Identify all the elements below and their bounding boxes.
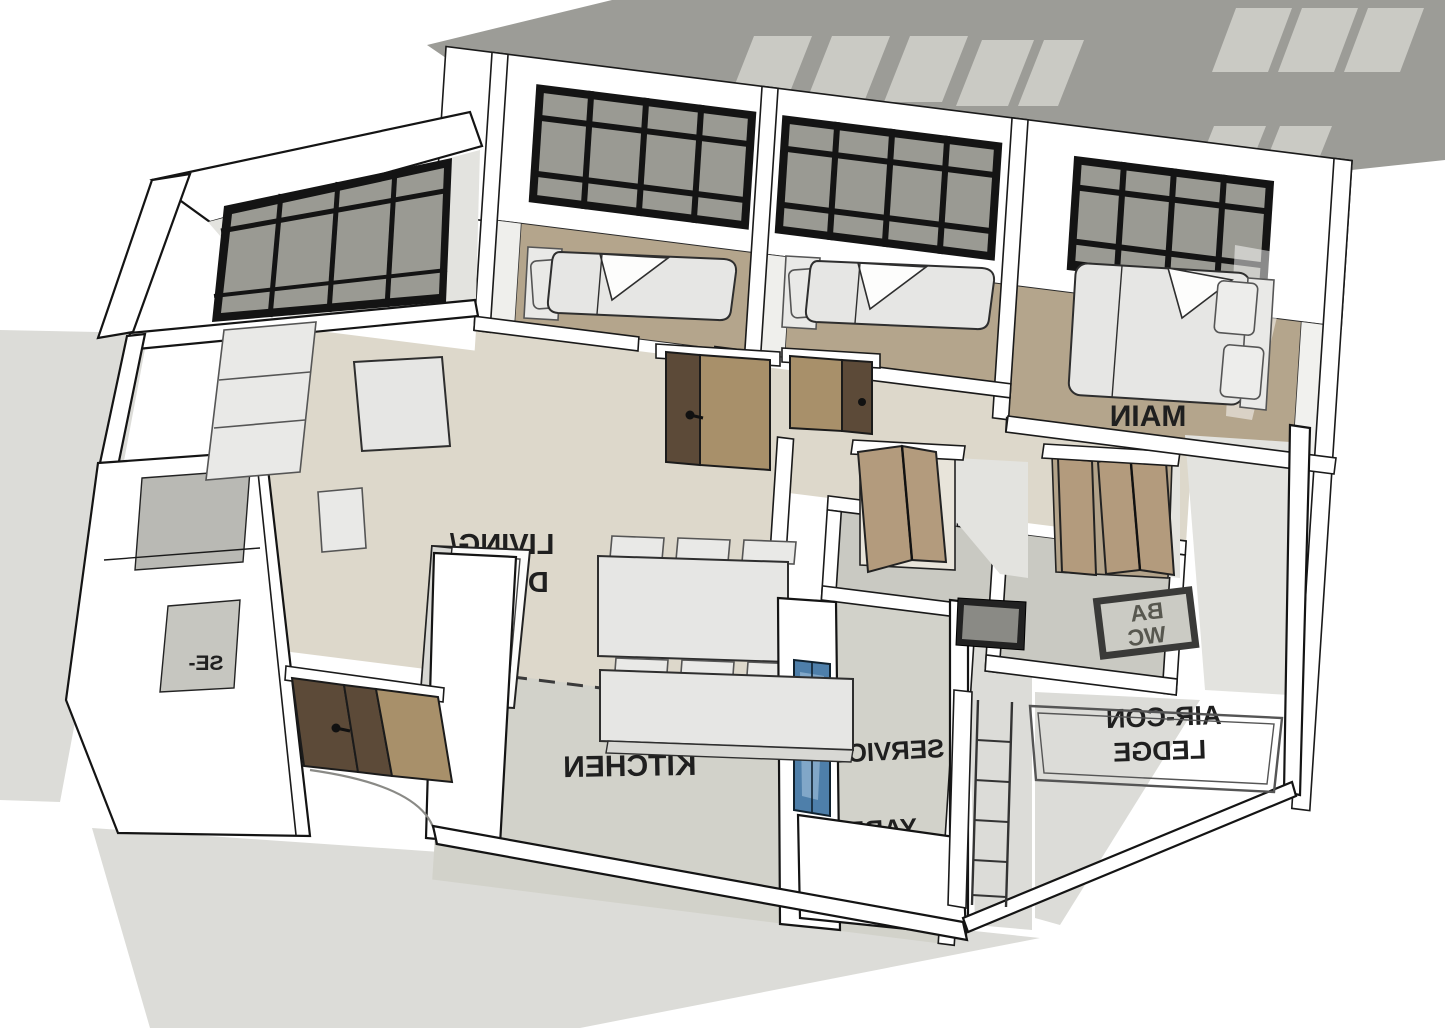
bifold-door-bath2 (1042, 444, 1180, 578)
shelter-label: SE- (188, 652, 223, 675)
side-table (318, 488, 366, 552)
shadow-service-east (968, 640, 1032, 930)
main-bed (1068, 263, 1274, 410)
dining-table (598, 556, 788, 662)
sofa (206, 322, 316, 480)
left-wing (66, 451, 310, 836)
dining-set (598, 536, 800, 690)
shelter-room-floor (135, 470, 250, 570)
door-bedroom1 (656, 344, 780, 470)
bath-label-panel: BA WC (1093, 586, 1200, 660)
floorplan-3d-render: LIVING/ DINING KITCHEN MAIN SERVICE YARD… (0, 0, 1445, 1028)
scene-svg: LIVING/ DINING KITCHEN MAIN SERVICE YARD… (0, 0, 1445, 1028)
shelter-room2-floor (160, 600, 240, 692)
kitchen-island (600, 670, 853, 750)
bath-transom-window (956, 598, 1026, 650)
bedroom2-bed (782, 256, 994, 329)
bedroom1-bed (524, 247, 736, 320)
main-label: MAIN (1110, 400, 1187, 433)
main-pillow-2 (1220, 344, 1264, 399)
main-pillow-1 (1214, 280, 1258, 335)
aircon-label-2: LEDGE (1113, 734, 1207, 767)
bifold-door-bath1 (851, 440, 965, 572)
door-bedroom2 (782, 348, 880, 434)
door2-handle (858, 398, 866, 406)
bath-label-2: WC (1126, 621, 1167, 651)
coffee-table (354, 357, 450, 451)
